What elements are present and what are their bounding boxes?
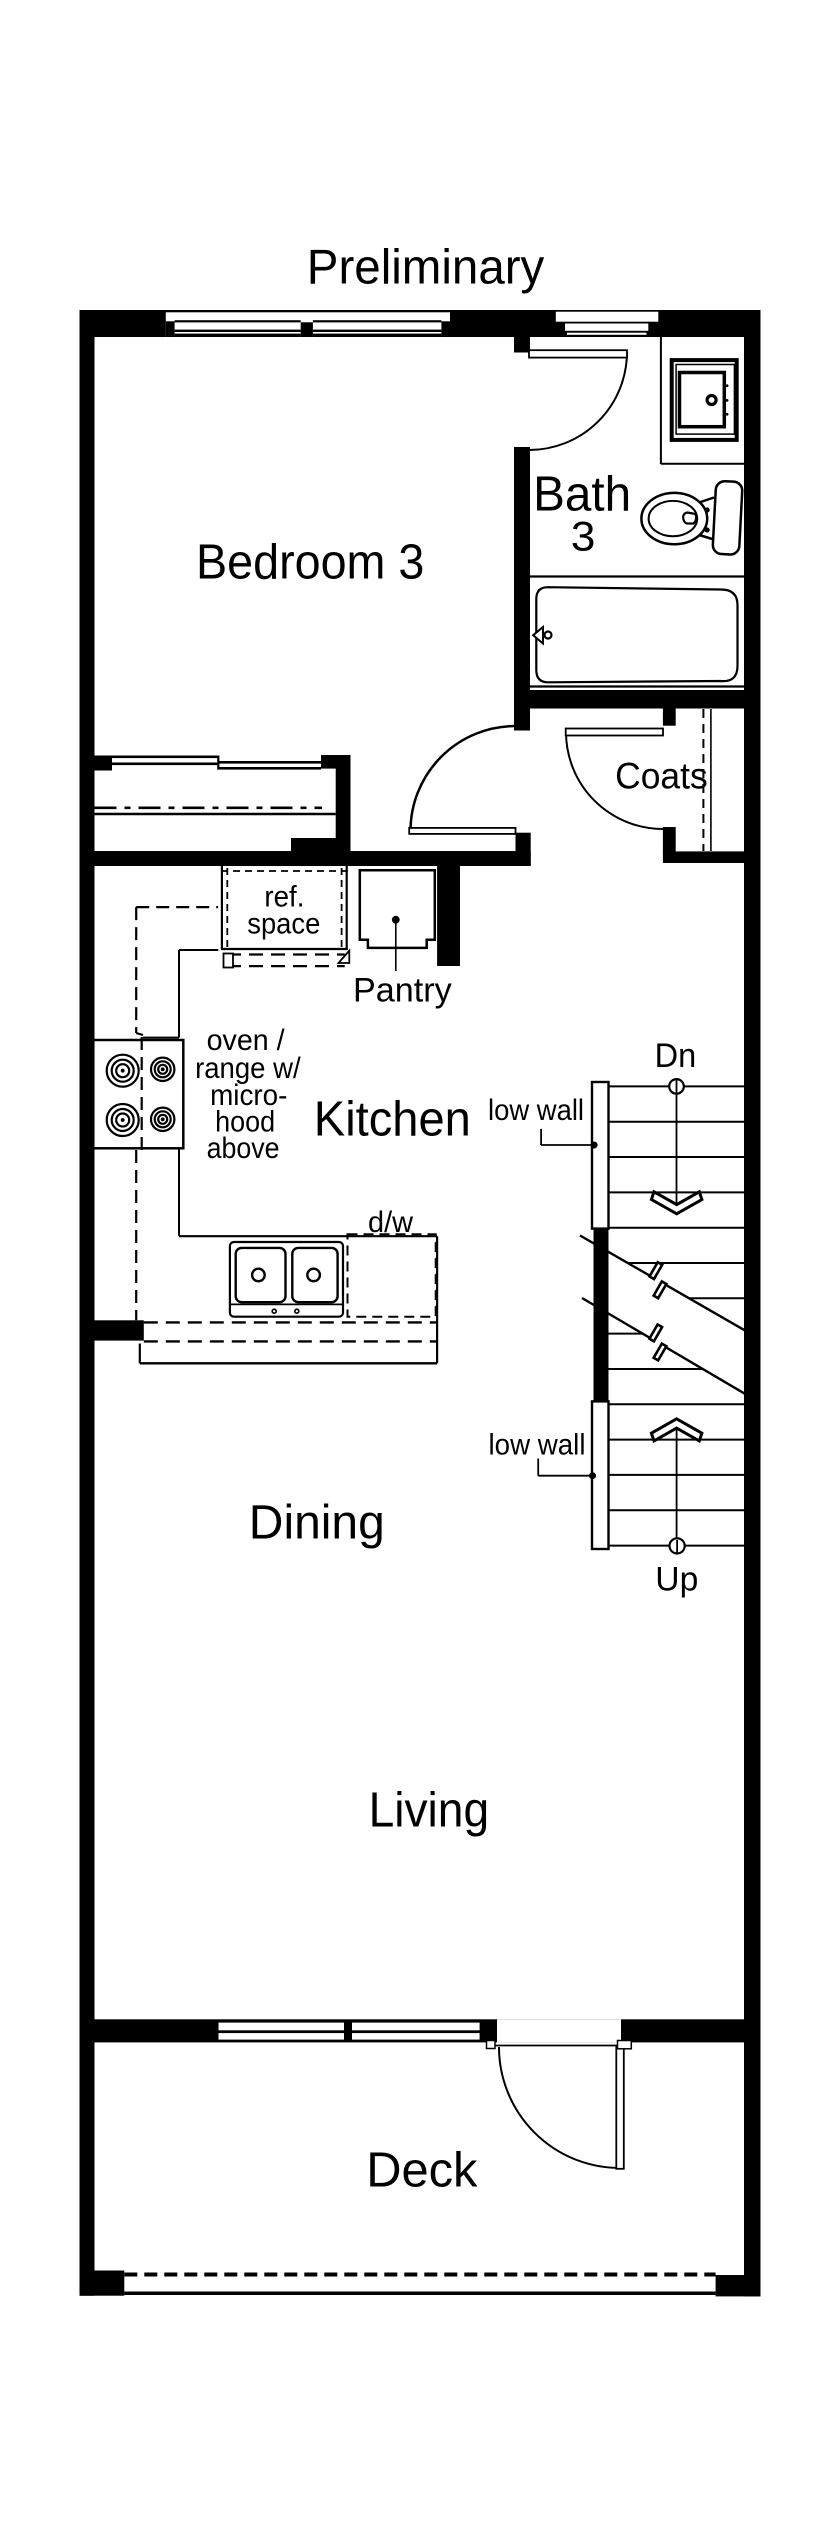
- svg-text:Preliminary: Preliminary: [307, 241, 545, 295]
- svg-text:low wall: low wall: [489, 1429, 586, 1462]
- svg-text:above: above: [207, 1132, 280, 1165]
- svg-text:Dining: Dining: [249, 1496, 385, 1550]
- svg-text:Pantry: Pantry: [353, 972, 452, 1010]
- svg-text:Up: Up: [655, 1561, 698, 1599]
- svg-text:Coats: Coats: [615, 756, 708, 797]
- svg-text:3: 3: [571, 513, 596, 560]
- svg-text:d/w: d/w: [368, 1206, 413, 1239]
- svg-text:Deck: Deck: [366, 2143, 478, 2197]
- svg-text:Kitchen: Kitchen: [314, 1093, 471, 1147]
- svg-text:low wall: low wall: [488, 1094, 584, 1127]
- svg-text:Dn: Dn: [655, 1037, 697, 1075]
- svg-text:Living: Living: [369, 1784, 490, 1838]
- svg-text:Bedroom 3: Bedroom 3: [196, 535, 424, 589]
- svg-text:space: space: [247, 908, 320, 941]
